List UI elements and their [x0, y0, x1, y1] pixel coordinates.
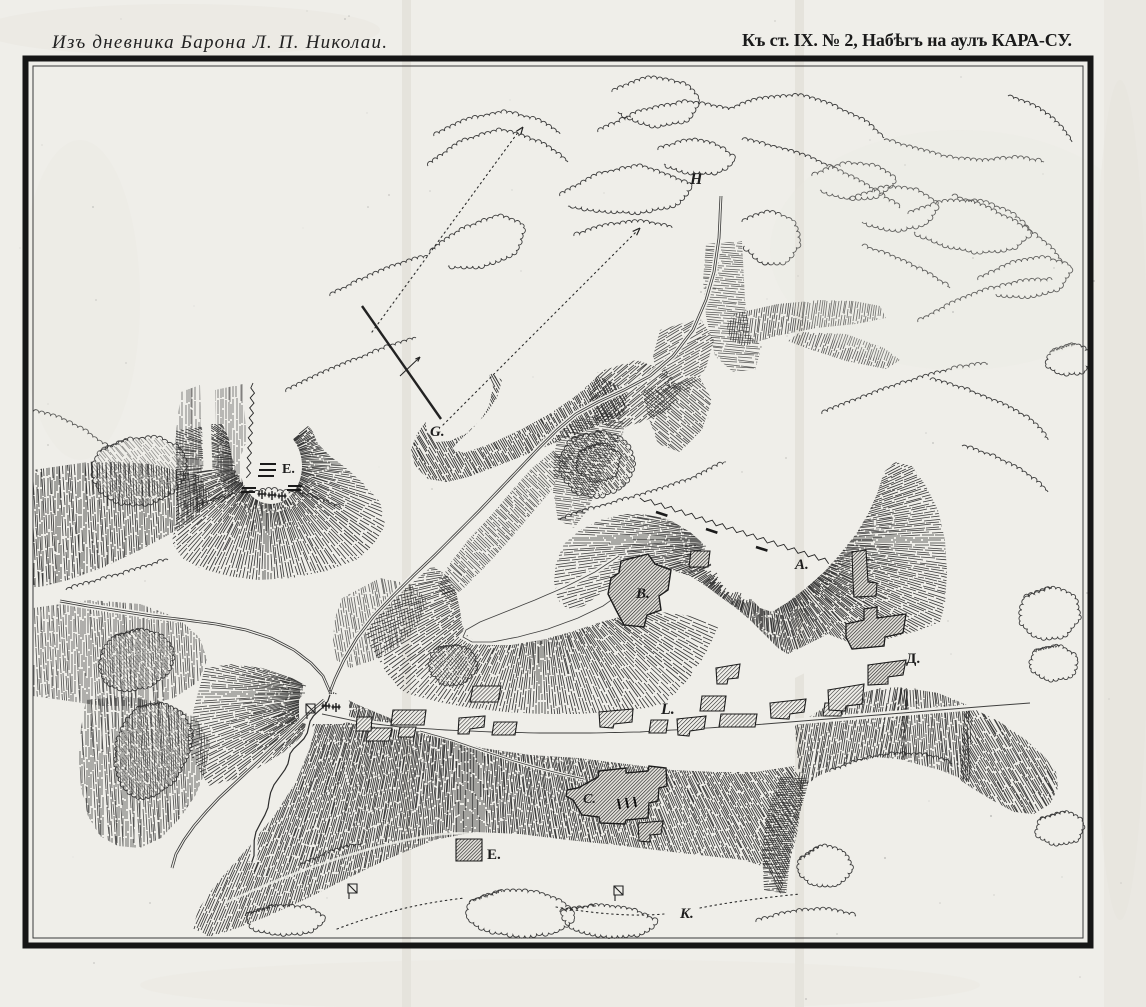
- svg-text:Изъ дневника Барона Л. П. Нико: Изъ дневника Барона Л. П. Николаи.: [51, 32, 387, 53]
- svg-text:A.: A.: [794, 557, 809, 573]
- svg-text:C.: C.: [583, 792, 596, 807]
- svg-text:E.: E.: [487, 847, 501, 863]
- svg-text:L.: L.: [660, 701, 675, 718]
- svg-text:K.: K.: [679, 906, 694, 922]
- svg-text:Къ ст. IX. № 2, Набѣгъ на аулъ: Къ ст. IX. № 2, Набѣгъ на аулъ КАРА-СУ.: [742, 30, 1072, 50]
- svg-text:H: H: [689, 171, 703, 188]
- svg-text:E.: E.: [282, 462, 295, 477]
- svg-text:Д.: Д.: [906, 651, 920, 667]
- svg-text:B.: B.: [635, 586, 650, 602]
- svg-text:G.: G.: [430, 424, 445, 440]
